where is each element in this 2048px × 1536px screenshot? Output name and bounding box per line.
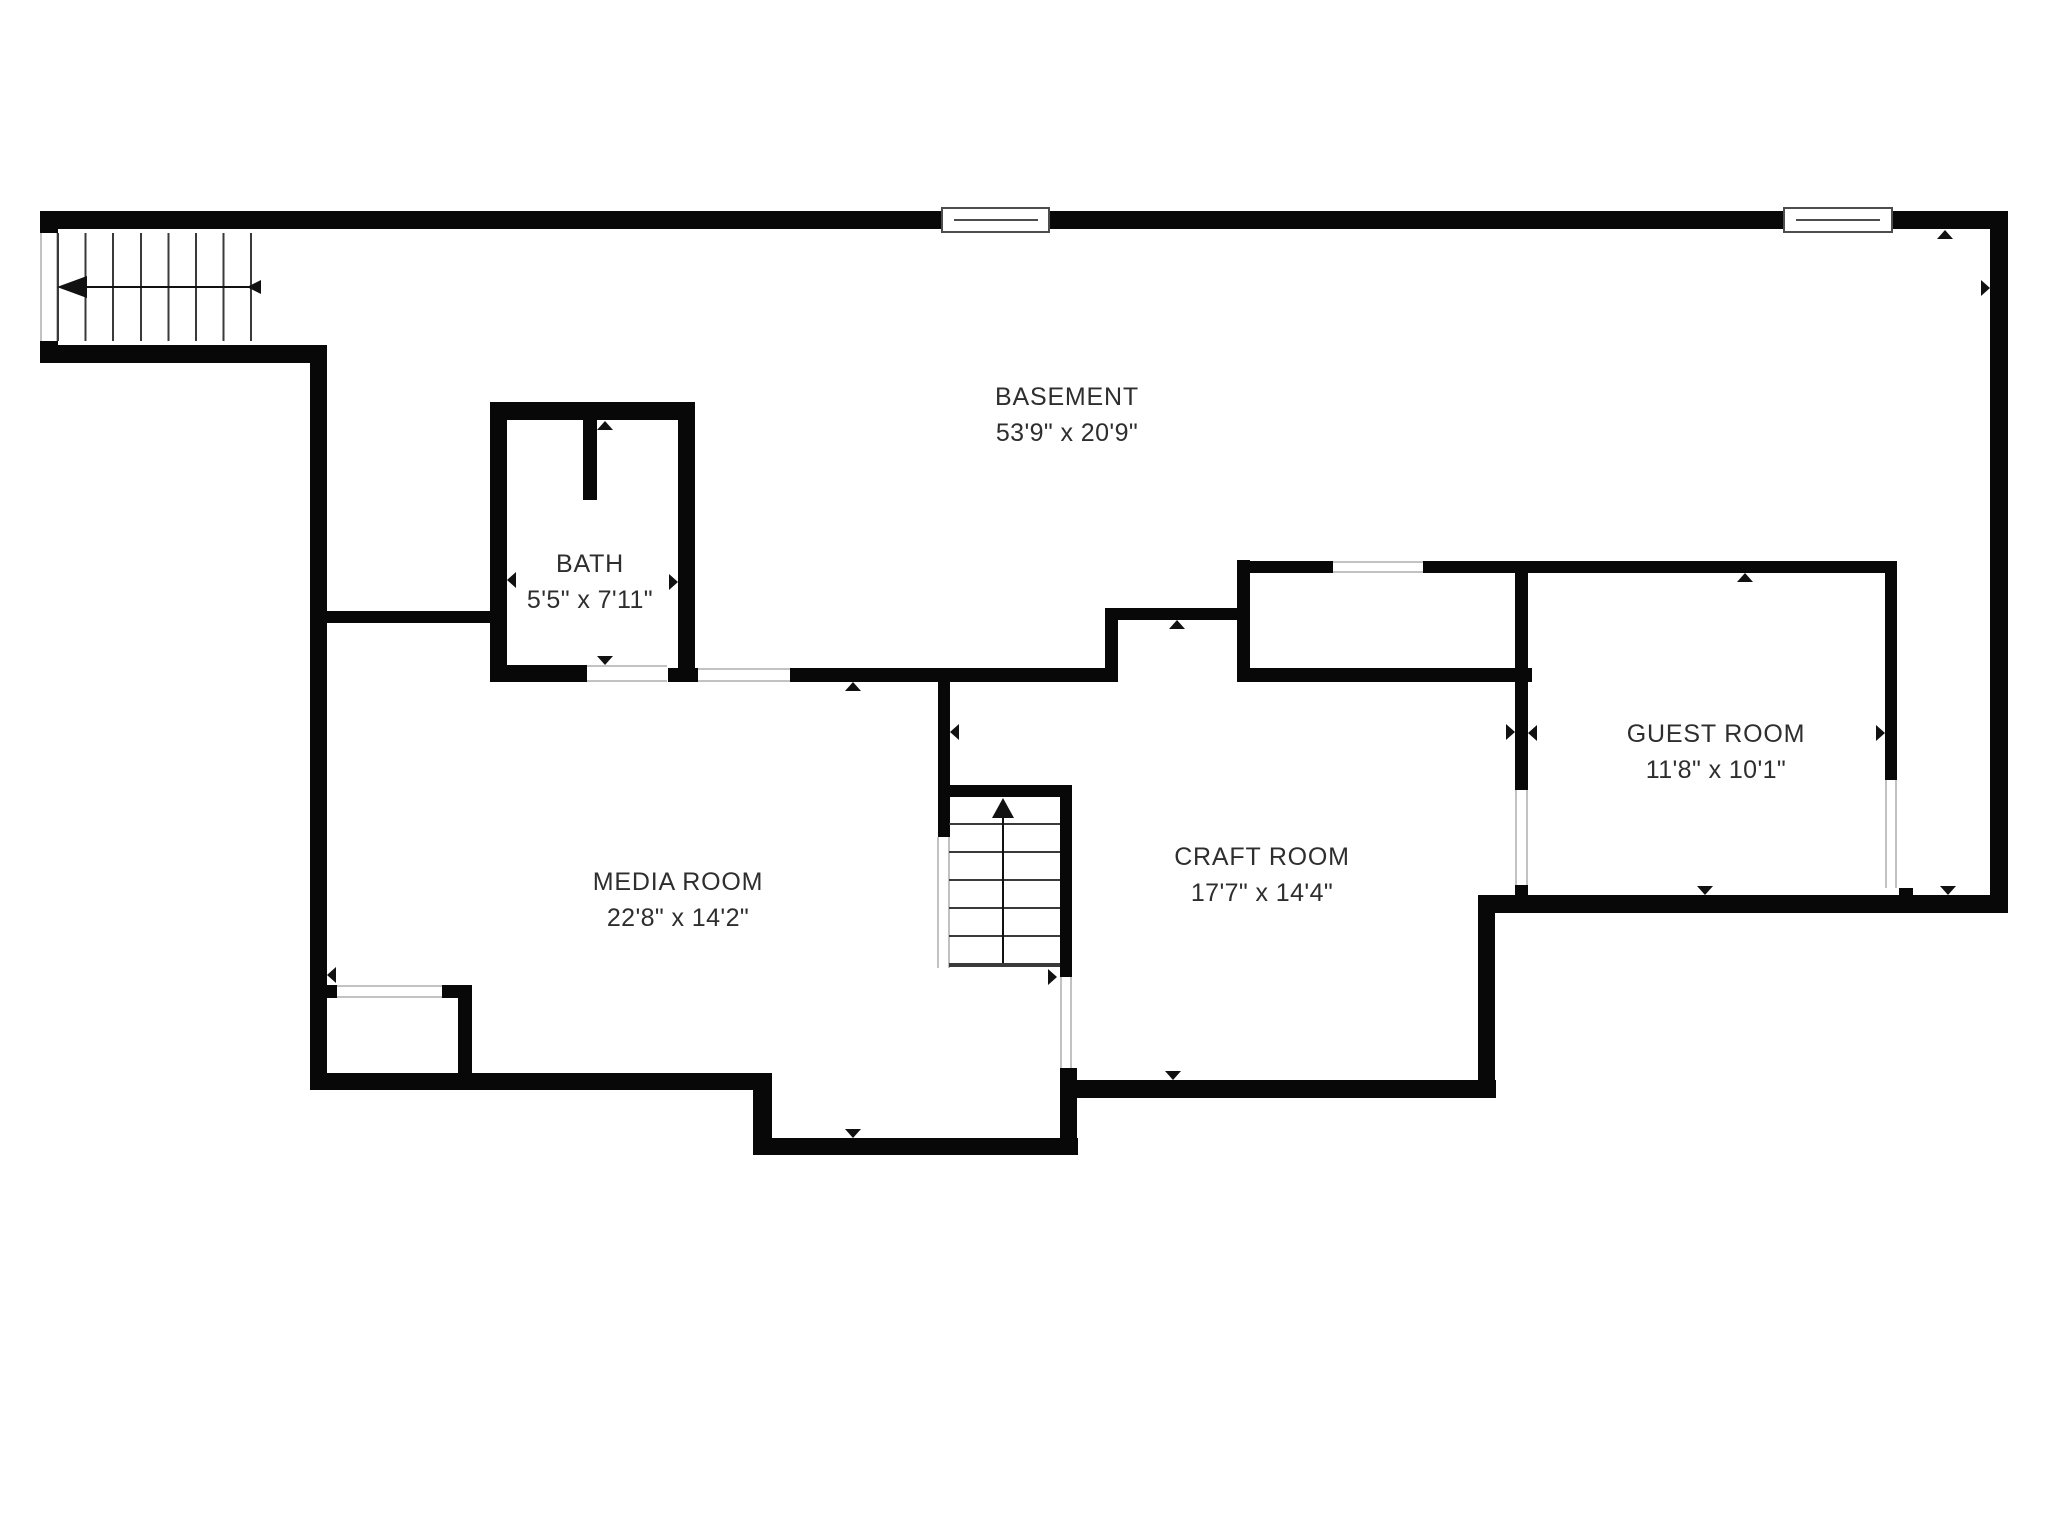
wall-media-top bbox=[325, 611, 502, 623]
wall-bump-bottom bbox=[753, 1138, 1078, 1155]
dimension-tick-down-icon bbox=[597, 656, 613, 665]
wall-step-vertical bbox=[1478, 895, 1495, 1098]
dimension-tick-right-icon bbox=[669, 574, 678, 590]
wall-guest-right-stub bbox=[1899, 888, 1913, 897]
room-label-basement: BASEMENT 53'9" x 20'9" bbox=[995, 379, 1139, 452]
wall-right bbox=[1990, 211, 2008, 913]
wall-closet-stub-left bbox=[327, 985, 337, 998]
lower-stairs-direction-line bbox=[1002, 800, 1004, 963]
room-name: BASEMENT bbox=[995, 379, 1139, 415]
dimension-tick-right-icon bbox=[1048, 969, 1057, 985]
room-name: MEDIA ROOM bbox=[593, 864, 764, 900]
dimension-tick-down-icon bbox=[1165, 1071, 1181, 1080]
wall-media-left bbox=[310, 345, 327, 1090]
stair-arrow-left-icon bbox=[57, 276, 87, 298]
wall-alcove-bottom bbox=[1237, 668, 1532, 682]
stair-arrow-up-icon bbox=[992, 798, 1014, 818]
wall-bath-top bbox=[490, 402, 695, 420]
wall-guest-top bbox=[1517, 561, 1897, 573]
bath-door-opening bbox=[587, 665, 667, 682]
lower-stairs-treads bbox=[949, 797, 1060, 967]
dimension-tick-left-icon bbox=[327, 967, 336, 983]
hall-door-opening bbox=[698, 668, 790, 682]
wall-bath-right bbox=[678, 402, 695, 668]
wall-media-bottom bbox=[310, 1073, 772, 1090]
wall-bath-right-foot bbox=[668, 668, 698, 682]
dimension-tick-up-icon bbox=[1737, 573, 1753, 582]
wall-bath-bottom-left bbox=[490, 665, 587, 682]
wall-stair-pocket-stub-top bbox=[40, 211, 58, 233]
wall-closet-right bbox=[458, 998, 472, 1075]
window-1 bbox=[941, 207, 1050, 233]
room-dimensions: 11'8" x 10'1" bbox=[1627, 752, 1805, 788]
window-glass-line bbox=[954, 219, 1038, 221]
wall-bath-stub bbox=[583, 420, 597, 500]
stair-arrow-tail-icon bbox=[247, 280, 261, 294]
room-name: GUEST ROOM bbox=[1627, 716, 1805, 752]
wall-alcove-top-left bbox=[1237, 561, 1333, 573]
room-label-bath: BATH 5'5" x 7'11" bbox=[527, 546, 653, 619]
window-2 bbox=[1783, 207, 1893, 233]
wall-stair-top bbox=[938, 785, 1072, 797]
dimension-tick-left-icon bbox=[1528, 725, 1537, 741]
dimension-tick-up-icon bbox=[1169, 620, 1185, 629]
dimension-tick-left-icon bbox=[950, 724, 959, 740]
wall-jog-top bbox=[1105, 608, 1250, 620]
room-name: BATH bbox=[527, 546, 653, 582]
wall-stair-pocket-bottom bbox=[40, 345, 327, 363]
room-dimensions: 22'8" x 14'2" bbox=[593, 900, 764, 936]
wall-bath-left bbox=[490, 402, 507, 682]
room-label-craft-room: CRAFT ROOM 17'7" x 14'4" bbox=[1174, 839, 1350, 912]
room-dimensions: 5'5" x 7'11" bbox=[527, 582, 653, 618]
room-dimensions: 53'9" x 20'9" bbox=[995, 415, 1139, 451]
room-dimensions: 17'7" x 14'4" bbox=[1174, 875, 1350, 911]
dimension-tick-right-icon bbox=[1981, 280, 1990, 296]
guest-left-door-opening bbox=[1515, 790, 1528, 885]
room-label-media-room: MEDIA ROOM 22'8" x 14'2" bbox=[593, 864, 764, 937]
alcove-opening bbox=[1333, 561, 1423, 573]
wall-guest-left bbox=[1515, 561, 1528, 790]
dimension-tick-down-icon bbox=[1697, 886, 1713, 895]
guest-right-door-opening bbox=[1885, 780, 1897, 888]
wall-top-left bbox=[40, 211, 943, 229]
window-glass-line bbox=[1796, 219, 1881, 221]
dimension-tick-down-icon bbox=[1940, 886, 1956, 895]
room-label-guest-room: GUEST ROOM 11'8" x 10'1" bbox=[1627, 716, 1805, 789]
wall-alcove-top-right bbox=[1423, 561, 1520, 573]
dimension-tick-up-icon bbox=[845, 682, 861, 691]
dimension-tick-up-icon bbox=[597, 421, 613, 430]
wall-top-middle bbox=[1048, 211, 1785, 229]
room-name: CRAFT ROOM bbox=[1174, 839, 1350, 875]
wall-hall bbox=[790, 668, 1118, 682]
floor-plan: BASEMENT 53'9" x 20'9" BATH 5'5" x 7'11"… bbox=[0, 0, 2048, 1536]
dimension-tick-down-icon bbox=[845, 1129, 861, 1138]
entry-stair-opening bbox=[40, 233, 58, 341]
wall-bottom-right-section bbox=[1478, 895, 2008, 913]
dimension-tick-left-icon bbox=[507, 572, 516, 588]
stair-bottom-door-opening bbox=[1060, 977, 1072, 1068]
wall-craft-bottom bbox=[1060, 1080, 1496, 1098]
wall-stair-right bbox=[1060, 785, 1072, 977]
wall-alcove-left bbox=[1237, 560, 1250, 682]
entry-stairs-direction-line bbox=[75, 286, 260, 288]
wall-closet-corner-right bbox=[442, 985, 472, 998]
closet-door-opening bbox=[337, 985, 442, 998]
wall-guest-left-stub bbox=[1515, 885, 1528, 897]
dimension-tick-up-icon bbox=[1937, 230, 1953, 239]
dimension-tick-right-icon bbox=[1876, 725, 1885, 741]
dimension-tick-right-icon bbox=[1506, 724, 1515, 740]
wall-guest-right bbox=[1885, 561, 1897, 780]
wall-stair-pocket-stub-bottom bbox=[40, 341, 58, 363]
